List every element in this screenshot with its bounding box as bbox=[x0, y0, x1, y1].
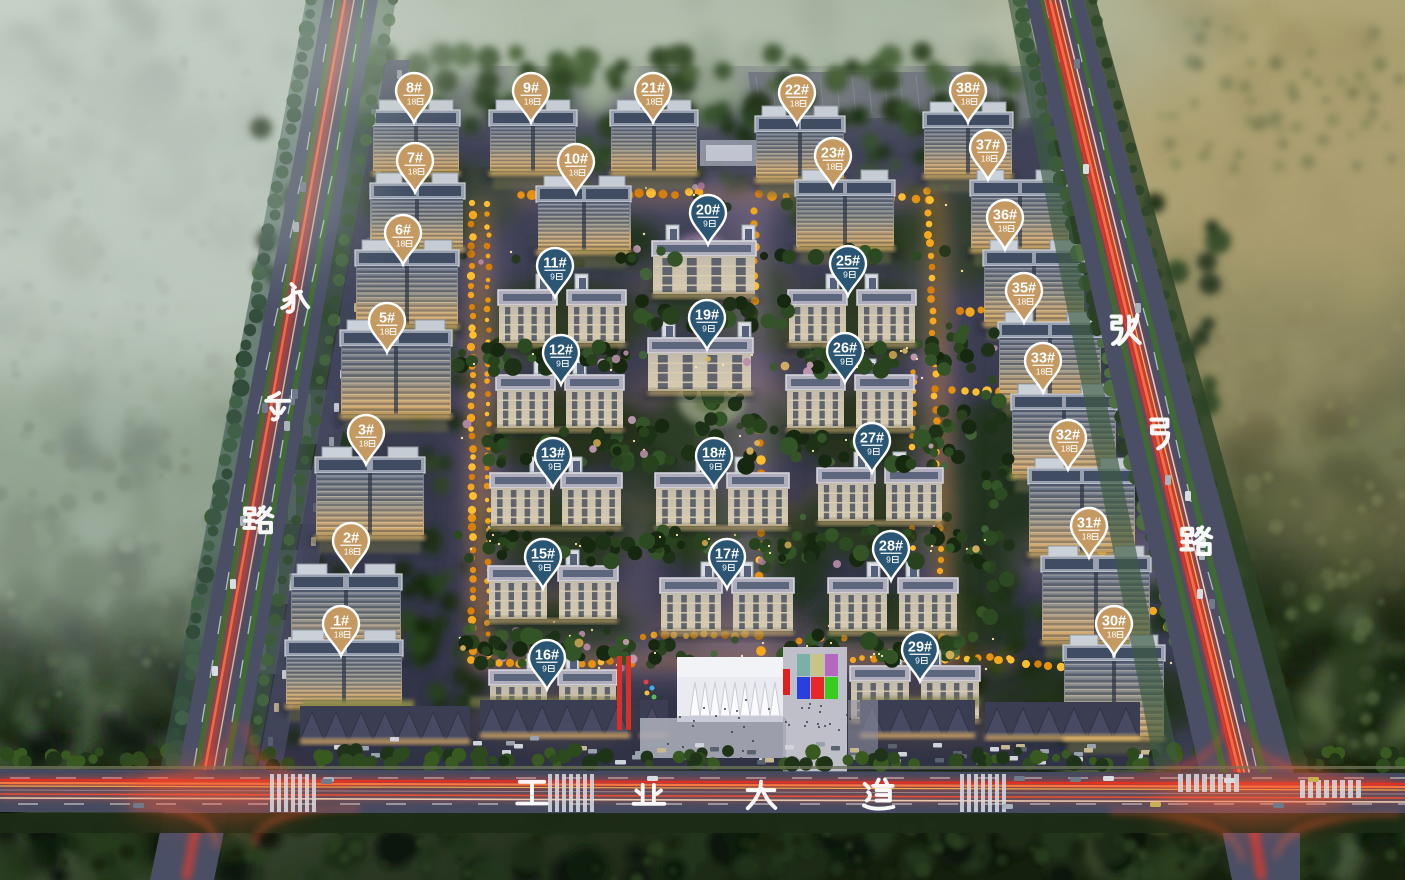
svg-text:18: 18 bbox=[1017, 297, 1027, 307]
svg-text:20#: 20# bbox=[696, 203, 720, 219]
svg-text:7#: 7# bbox=[407, 151, 423, 167]
svg-text:18: 18 bbox=[334, 630, 344, 640]
svg-text:18: 18 bbox=[1082, 532, 1092, 542]
svg-text:10#: 10# bbox=[564, 152, 588, 168]
svg-text:18: 18 bbox=[408, 167, 418, 177]
svg-text:18: 18 bbox=[524, 97, 534, 107]
svg-text:18: 18 bbox=[1061, 444, 1071, 454]
svg-text:33#: 33# bbox=[1031, 351, 1055, 367]
svg-text:31#: 31# bbox=[1077, 516, 1101, 532]
svg-text:36#: 36# bbox=[993, 208, 1017, 224]
svg-text:11#: 11# bbox=[543, 256, 566, 272]
svg-text:1#: 1# bbox=[333, 614, 349, 630]
svg-text:6#: 6# bbox=[395, 223, 411, 239]
svg-text:5#: 5# bbox=[379, 311, 395, 327]
svg-text:35#: 35# bbox=[1012, 281, 1036, 297]
svg-text:18: 18 bbox=[998, 224, 1008, 234]
svg-text:18: 18 bbox=[1107, 630, 1117, 640]
svg-text:18: 18 bbox=[407, 97, 417, 107]
svg-text:18: 18 bbox=[826, 162, 836, 172]
svg-text:9: 9 bbox=[703, 219, 708, 229]
svg-text:18: 18 bbox=[569, 168, 579, 178]
svg-text:22#: 22# bbox=[785, 83, 809, 99]
svg-text:23#: 23# bbox=[821, 146, 845, 162]
svg-text:37#: 37# bbox=[976, 138, 1000, 154]
svg-text:2#: 2# bbox=[343, 531, 359, 547]
svg-text:32#: 32# bbox=[1056, 428, 1080, 444]
svg-text:18: 18 bbox=[981, 154, 991, 164]
svg-text:30#: 30# bbox=[1102, 614, 1126, 630]
svg-text:18: 18 bbox=[961, 97, 971, 107]
svg-text:18: 18 bbox=[359, 439, 369, 449]
svg-text:8#: 8# bbox=[406, 81, 422, 97]
svg-text:38#: 38# bbox=[956, 81, 980, 97]
svg-text:18: 18 bbox=[790, 99, 800, 109]
svg-text:18: 18 bbox=[344, 547, 354, 557]
svg-text:3#: 3# bbox=[358, 423, 374, 439]
svg-text:18: 18 bbox=[380, 327, 390, 337]
svg-text:18: 18 bbox=[1036, 367, 1046, 377]
svg-text:9#: 9# bbox=[523, 81, 539, 97]
svg-text:21#: 21# bbox=[641, 81, 665, 97]
svg-text:18: 18 bbox=[646, 97, 656, 107]
svg-text:18: 18 bbox=[396, 239, 406, 249]
